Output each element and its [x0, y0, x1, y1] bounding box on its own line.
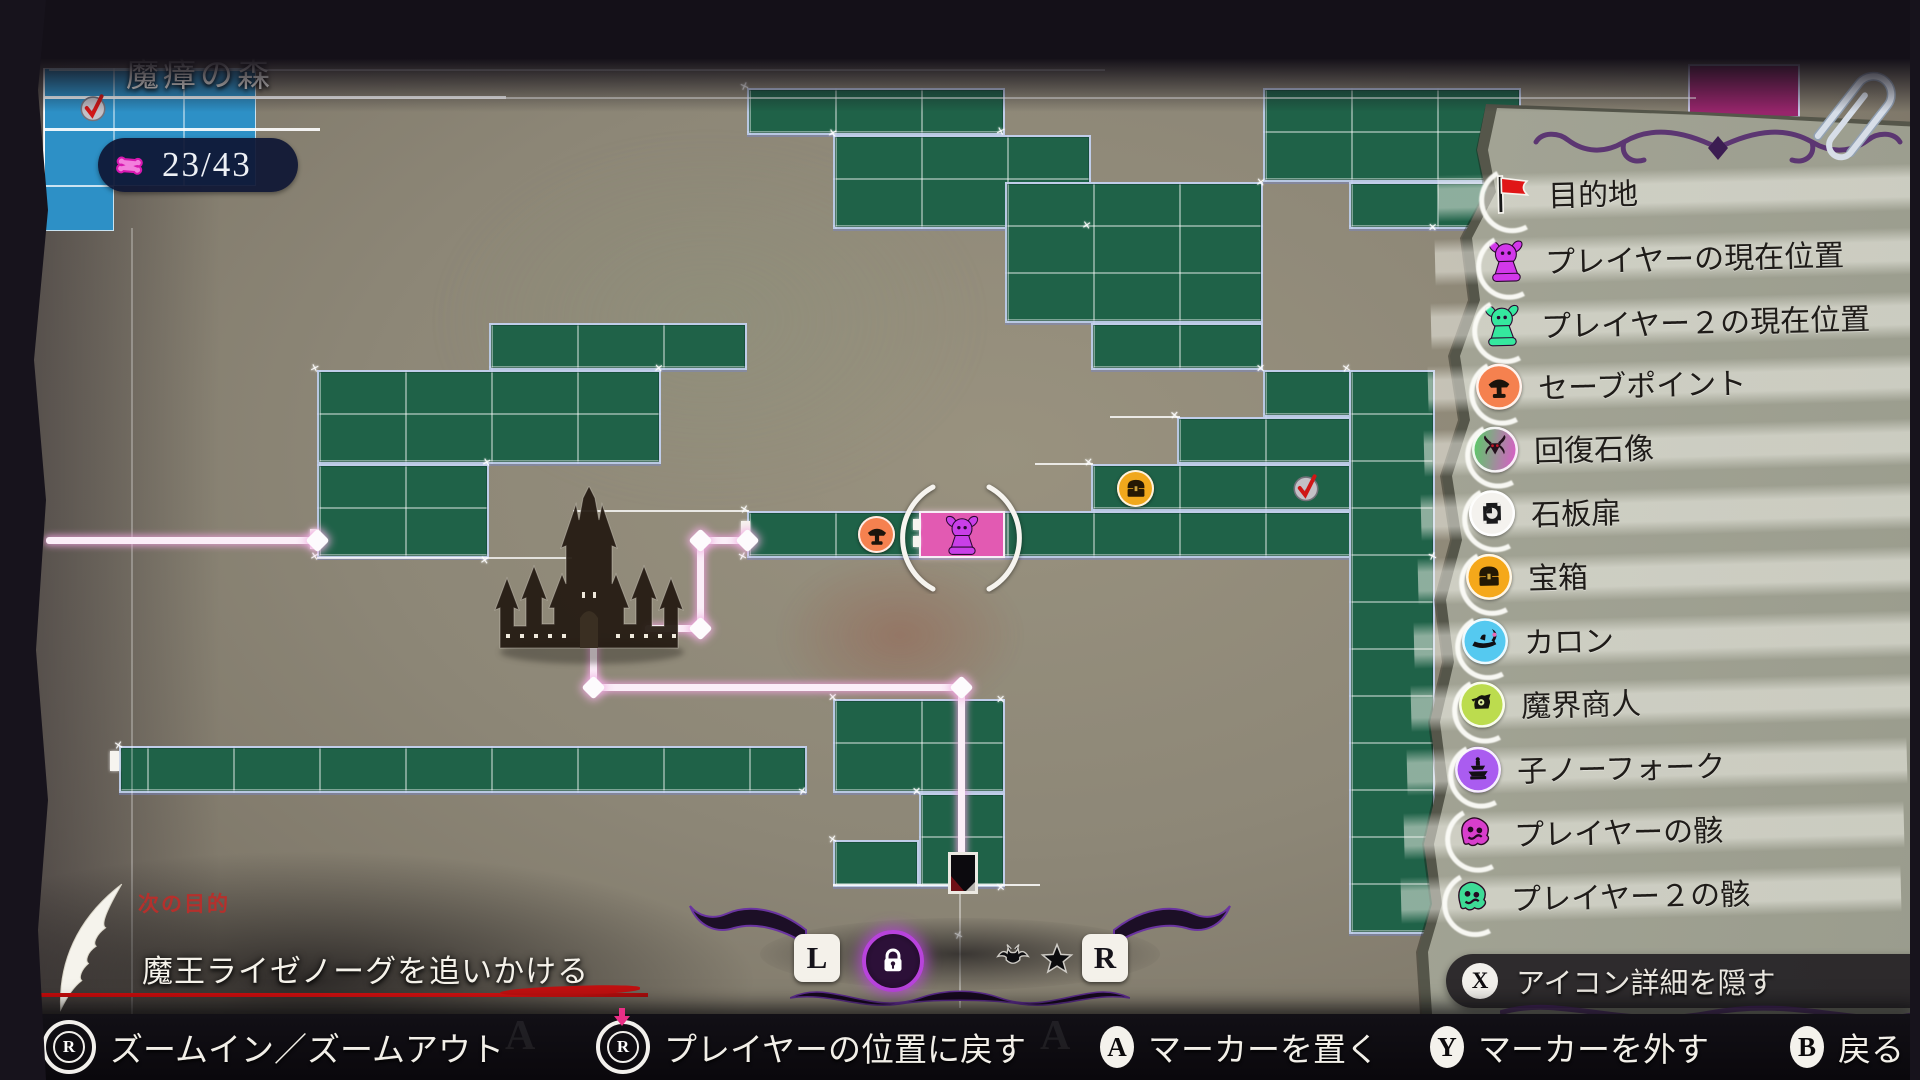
map-current-area-block — [44, 186, 114, 231]
ghost-a-1: A — [505, 1012, 535, 1060]
r-button[interactable]: R — [1082, 934, 1128, 982]
map-room-block — [833, 840, 919, 887]
map-room-block — [489, 323, 747, 370]
route-line — [46, 537, 317, 544]
hint-label: マーカーを外す — [1478, 1023, 1709, 1071]
route-line — [958, 687, 965, 856]
map-icon-gate-marker — [948, 852, 978, 899]
corner-mark: ✕ — [995, 882, 1005, 894]
map-completion-counter: 23/43 — [98, 138, 298, 192]
map-room-block — [317, 370, 661, 464]
x-button-icon: X — [1462, 963, 1498, 999]
doorway-tick — [110, 751, 119, 771]
objective-text: 魔王ライゼノーグを追いかける — [142, 946, 589, 991]
map-room-block — [747, 88, 1005, 135]
corner-mark: ✕ — [309, 550, 320, 563]
corner-mark: ✕ — [912, 786, 922, 797]
counter-text: 23/43 — [162, 145, 252, 185]
objective-heading: 次の目的 — [138, 888, 230, 918]
ghost-a-2: A — [1040, 1012, 1070, 1060]
corner-mark: ✕ — [481, 456, 493, 469]
map-room-block — [833, 699, 1005, 793]
map-room-block — [1349, 370, 1435, 934]
corner-mark: ✕ — [1255, 176, 1266, 188]
route-line — [593, 684, 961, 691]
hint-rstick-press-item[interactable]: Rプレイヤーの位置に戻す — [596, 1014, 1026, 1080]
bone-icon — [114, 148, 148, 182]
corner-mark: ✕ — [1428, 222, 1438, 233]
map-room-block — [747, 511, 1435, 558]
filter-lock-icon[interactable] — [862, 930, 924, 992]
castle-icon — [492, 486, 698, 670]
right-torn-edge — [1910, 0, 1920, 1080]
toolbar-flourish-left — [688, 900, 808, 958]
corner-mark: ✕ — [828, 692, 838, 703]
hide-details-label: アイコン詳細を隠す — [1516, 960, 1776, 1002]
b-button-icon: B — [1790, 1026, 1824, 1068]
corner-mark: ✕ — [113, 739, 124, 752]
hint-Y-item[interactable]: Yマーカーを外す — [1430, 1014, 1709, 1080]
corner-mark: ✕ — [1170, 410, 1180, 422]
map-room-block — [1091, 323, 1263, 370]
corner-mark: ✕ — [827, 833, 838, 845]
corner-mark: ✕ — [653, 363, 663, 375]
toolbar-flourish-right — [1112, 900, 1232, 958]
route-node — [949, 675, 973, 699]
area-title: 魔瘴の森 — [126, 48, 274, 96]
filter-star-icon[interactable] — [1040, 942, 1074, 981]
player-focus-brackets — [893, 482, 1029, 594]
map-icon-chest — [1117, 470, 1154, 507]
corner-mark: ✕ — [738, 80, 750, 93]
hint-B-item[interactable]: B戻る — [1790, 1014, 1904, 1080]
map-grid-line — [833, 884, 1040, 886]
l-button[interactable]: L — [794, 934, 840, 982]
hint-label: 戻る — [1838, 1023, 1904, 1071]
y-button-icon: Y — [1430, 1026, 1464, 1068]
right-stick-icon: R — [42, 1020, 96, 1074]
bottom-control-bar: Rズームイン／ズームアウトRプレイヤーの位置に戻すAマーカーを置くYマーカーを外… — [0, 1014, 1920, 1080]
a-button-icon: A — [1100, 1026, 1134, 1068]
map-room-block — [1005, 182, 1263, 323]
corner-mark: ✕ — [739, 503, 750, 516]
hint-rstick-item[interactable]: Rズームイン／ズームアウト — [42, 1014, 504, 1080]
right-stick-icon: R — [596, 1020, 650, 1074]
map-icon-check — [1288, 470, 1324, 511]
route-node — [581, 675, 605, 699]
corner-mark: ✕ — [479, 554, 490, 566]
hint-label: マーカーを置く — [1148, 1023, 1379, 1071]
map-icon-save — [858, 516, 895, 553]
corner-mark: ✕ — [1256, 363, 1265, 374]
hint-label: ズームイン／ズームアウト — [110, 1023, 504, 1071]
map-room-block — [317, 464, 489, 558]
map-room-block — [119, 746, 807, 793]
map-boss-room-block — [1688, 64, 1800, 118]
map-icon-check — [75, 90, 111, 131]
map-grid-line — [506, 97, 1696, 99]
filter-bat-icon[interactable] — [996, 942, 1030, 973]
game-map-screen[interactable]: 60 ✕✕✕✕✕✕✕✕✕✕✕✕✕✕✕✕✕✕✕✕✕✕✕✕✕✕✕✕ 魔瘴の森 — [0, 0, 1920, 1080]
corner-mark: ✕ — [1341, 362, 1352, 374]
corner-mark: ✕ — [996, 694, 1005, 705]
corner-mark: ✕ — [1083, 456, 1093, 468]
hint-label: プレイヤーの位置に戻す — [664, 1023, 1026, 1071]
hint-A-item[interactable]: Aマーカーを置く — [1100, 1014, 1379, 1080]
toolbar-flourish-bottom — [790, 978, 1130, 1018]
